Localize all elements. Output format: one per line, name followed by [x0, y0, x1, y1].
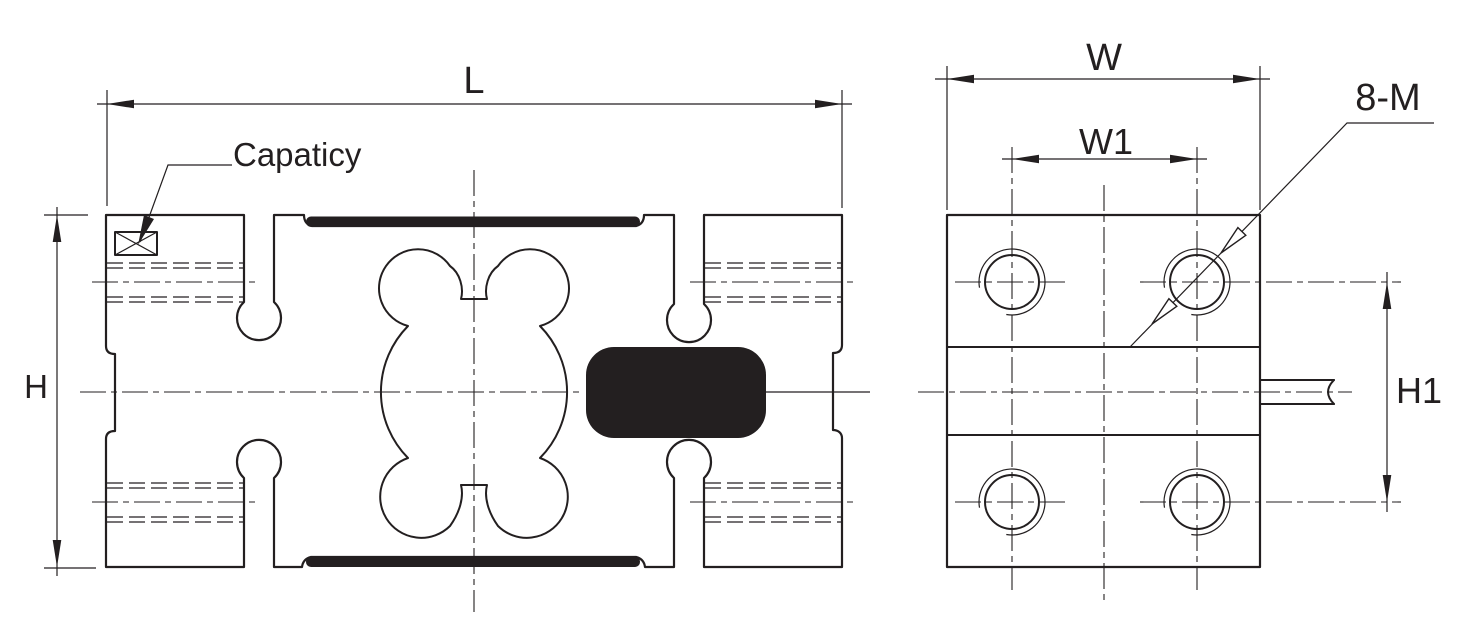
capacity-leader-arrowhead	[138, 215, 154, 245]
dim-arrowhead	[1233, 75, 1260, 84]
seal-strip-top	[306, 217, 640, 228]
dimension-H1: H1	[1383, 272, 1442, 512]
load-cell-outline-drawing: Capaticy L H	[0, 0, 1459, 624]
label-length: L	[463, 60, 484, 102]
drawing-canvas: Capaticy L H	[0, 0, 1459, 624]
label-height1: H1	[1396, 370, 1442, 411]
label-width: W	[1086, 37, 1122, 79]
label-thread-callout: 8-M	[1355, 77, 1420, 119]
dim-arrowhead	[53, 540, 62, 567]
gauge-cover	[586, 347, 766, 438]
capacity-tag	[115, 232, 157, 255]
dim-arrowhead	[947, 75, 974, 84]
dim-arrowhead	[1170, 155, 1197, 164]
capacity-label: Capaticy	[233, 136, 362, 173]
dim-arrowhead	[815, 100, 842, 109]
dim-arrowhead	[1383, 475, 1392, 502]
dim-arrowhead	[1383, 282, 1392, 309]
leader-open-arrowhead	[1221, 228, 1246, 253]
dim-arrowhead	[107, 100, 134, 109]
label-width1: W1	[1079, 121, 1133, 162]
dimension-W1: W1	[1002, 121, 1207, 163]
dim-arrowhead	[53, 215, 62, 242]
label-height: H	[24, 368, 48, 405]
side-view: Capaticy L H	[24, 60, 870, 612]
leader-open-arrowhead	[1152, 299, 1177, 324]
seal-strip-bottom	[306, 557, 640, 568]
end-view: W W1 H1 8-M	[918, 37, 1442, 602]
dim-arrowhead	[1012, 155, 1039, 164]
